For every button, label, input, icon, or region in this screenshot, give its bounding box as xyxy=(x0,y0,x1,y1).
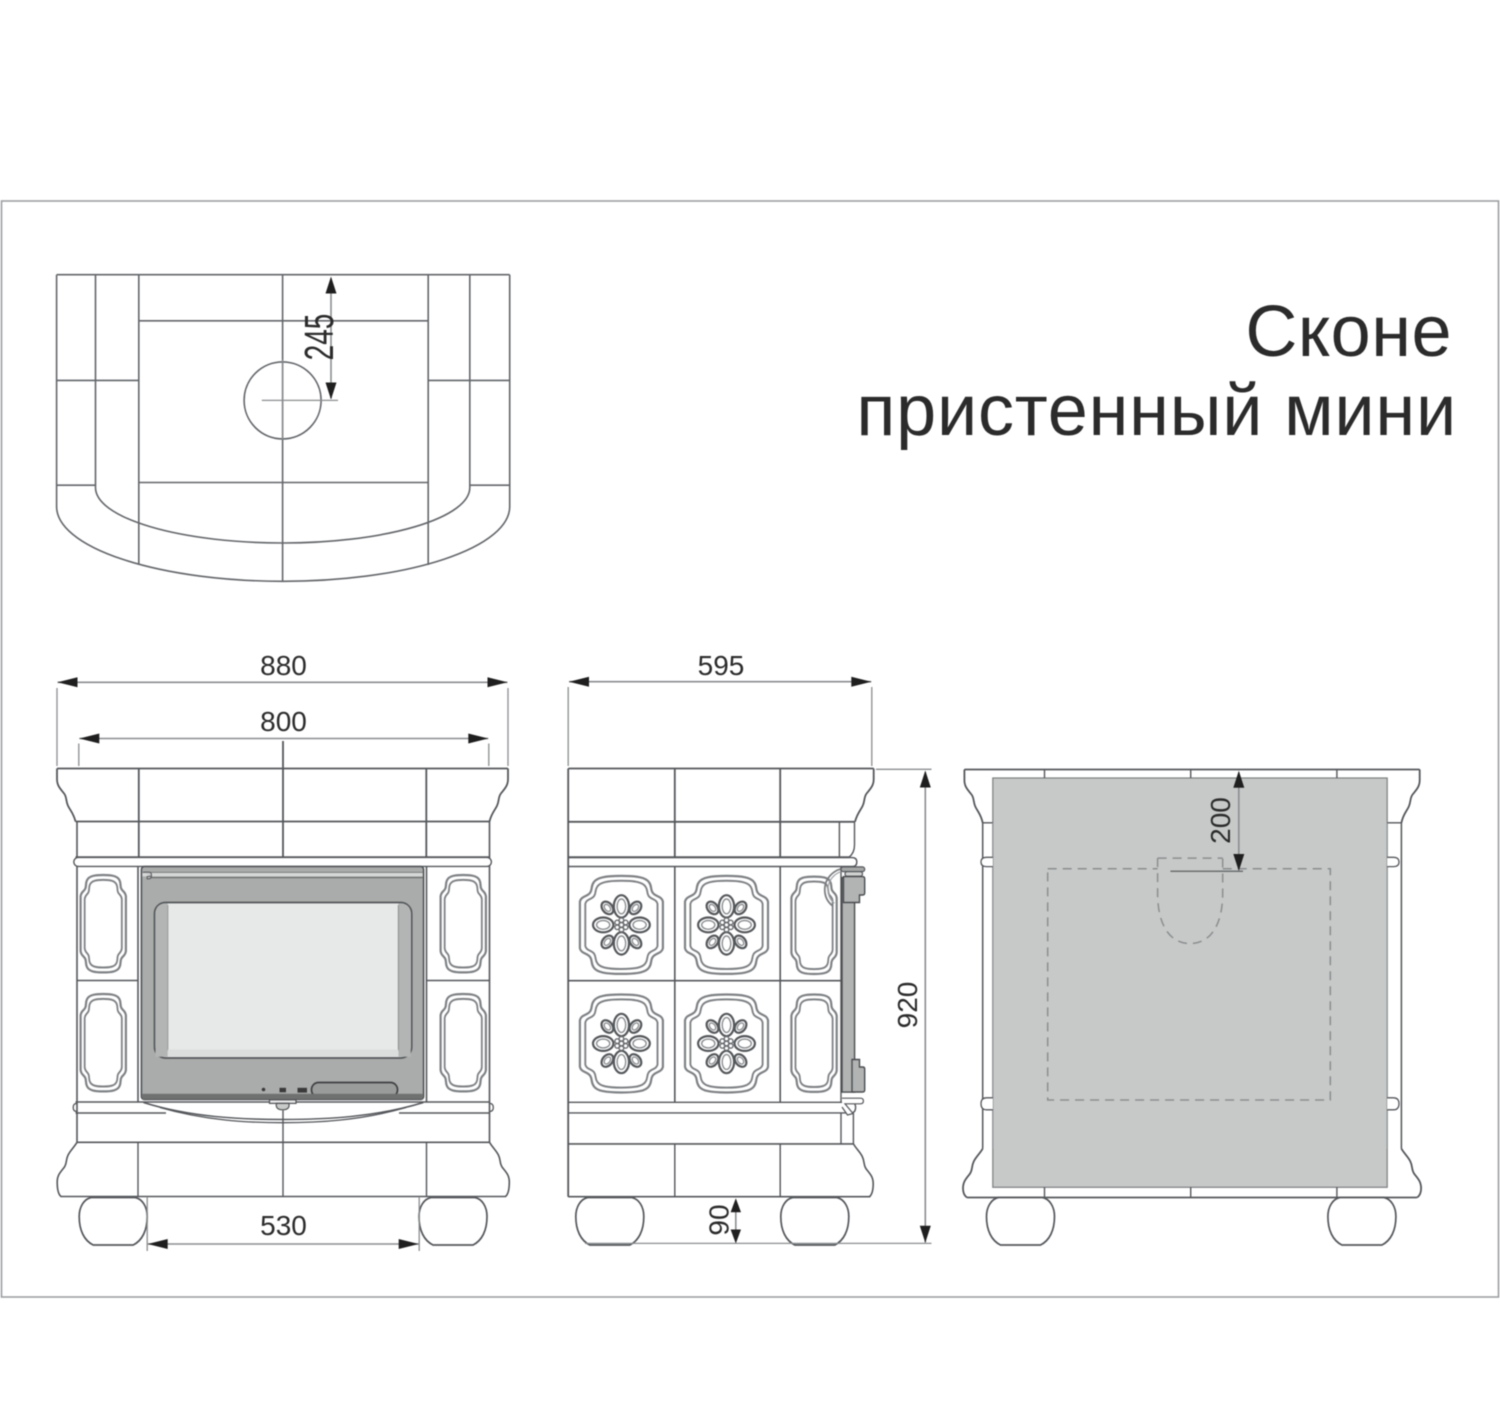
svg-text:530: 530 xyxy=(260,1210,307,1241)
svg-text:245: 245 xyxy=(297,314,342,361)
svg-text:90: 90 xyxy=(704,1204,735,1235)
svg-text:920: 920 xyxy=(892,982,923,1029)
svg-text:800: 800 xyxy=(260,706,307,737)
svg-text:пристенный мини: пристенный мини xyxy=(856,371,1457,451)
svg-text:200: 200 xyxy=(1205,797,1236,844)
svg-text:Сконе: Сконе xyxy=(1245,292,1452,372)
svg-text:880: 880 xyxy=(260,650,307,681)
svg-text:595: 595 xyxy=(698,650,745,681)
